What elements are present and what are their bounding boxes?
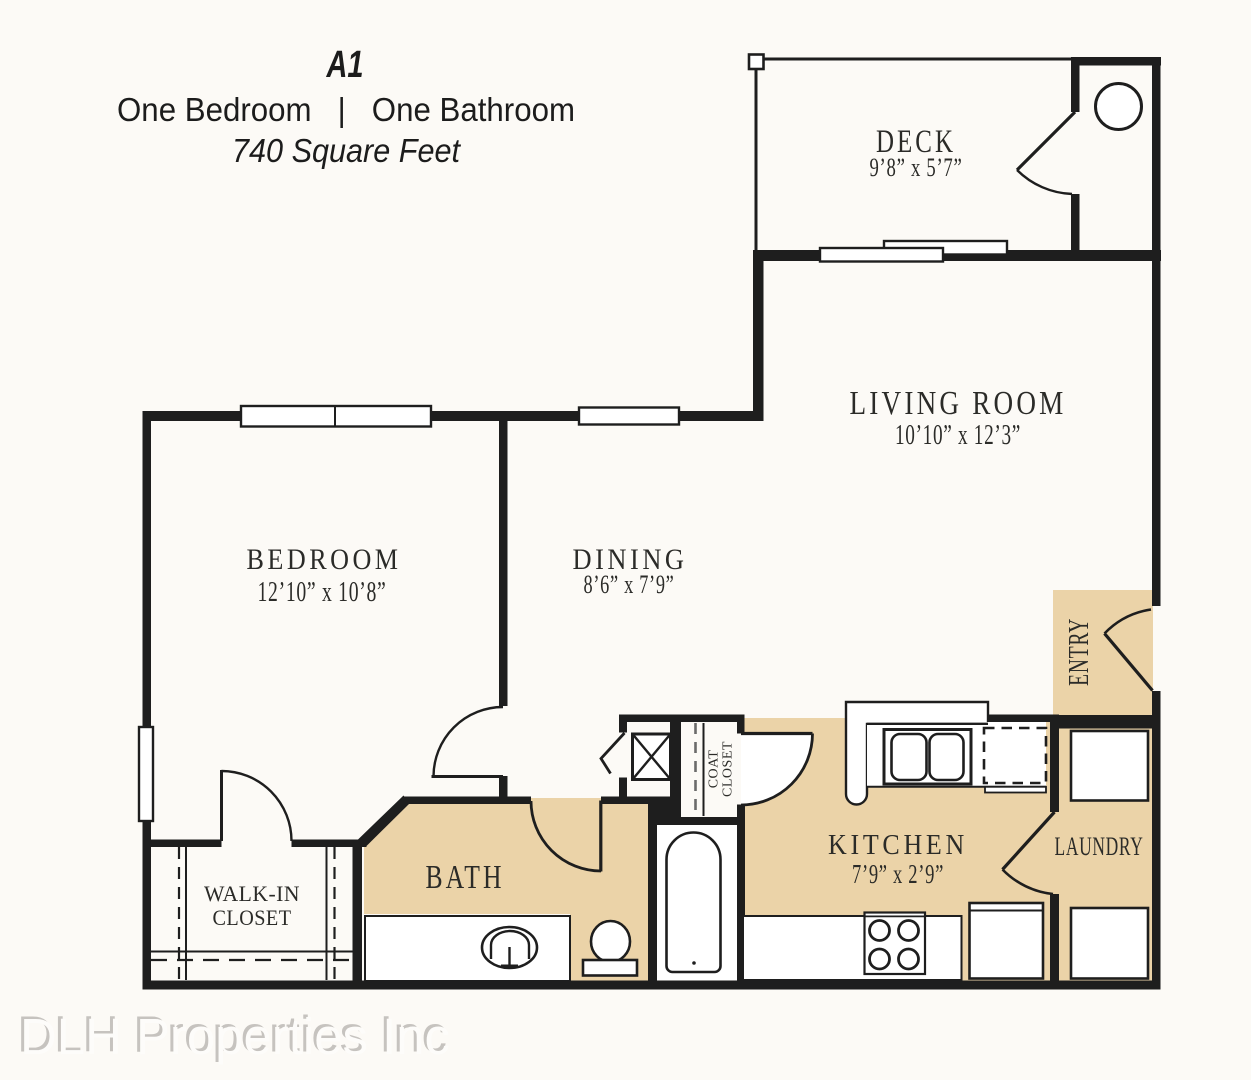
svg-text:ENTRY: ENTRY xyxy=(1064,618,1095,686)
svg-text:9’8” x 5’7”: 9’8” x 5’7” xyxy=(870,153,963,182)
svg-text:10’10” x 12’3”: 10’10” x 12’3” xyxy=(895,420,1021,451)
svg-text:740 Square Feet: 740 Square Feet xyxy=(232,132,462,169)
svg-text:COAT: COAT xyxy=(707,750,722,789)
svg-text:12’10” x 10’8”: 12’10” x 10’8” xyxy=(258,577,387,608)
svg-text:CLOSET: CLOSET xyxy=(213,905,292,930)
svg-text:CLOSET: CLOSET xyxy=(721,741,736,797)
svg-text:DLH Properties Inc: DLH Properties Inc xyxy=(20,1008,450,1065)
svg-text:KITCHEN: KITCHEN xyxy=(828,830,968,861)
svg-text:BATH: BATH xyxy=(426,859,505,896)
svg-text:BEDROOM: BEDROOM xyxy=(247,543,402,576)
svg-text:8’6” x 7’9”: 8’6” x 7’9” xyxy=(584,570,675,599)
svg-text:A1: A1 xyxy=(326,44,364,86)
svg-text:LAUNDRY: LAUNDRY xyxy=(1055,832,1144,861)
svg-text:One Bedroom | One Bathroom: One Bedroom | One Bathroom xyxy=(117,91,575,128)
svg-text:7’9” x 2’9”: 7’9” x 2’9” xyxy=(852,859,944,889)
svg-text:LIVING ROOM: LIVING ROOM xyxy=(850,385,1067,422)
svg-text:WALK-IN: WALK-IN xyxy=(204,881,300,906)
